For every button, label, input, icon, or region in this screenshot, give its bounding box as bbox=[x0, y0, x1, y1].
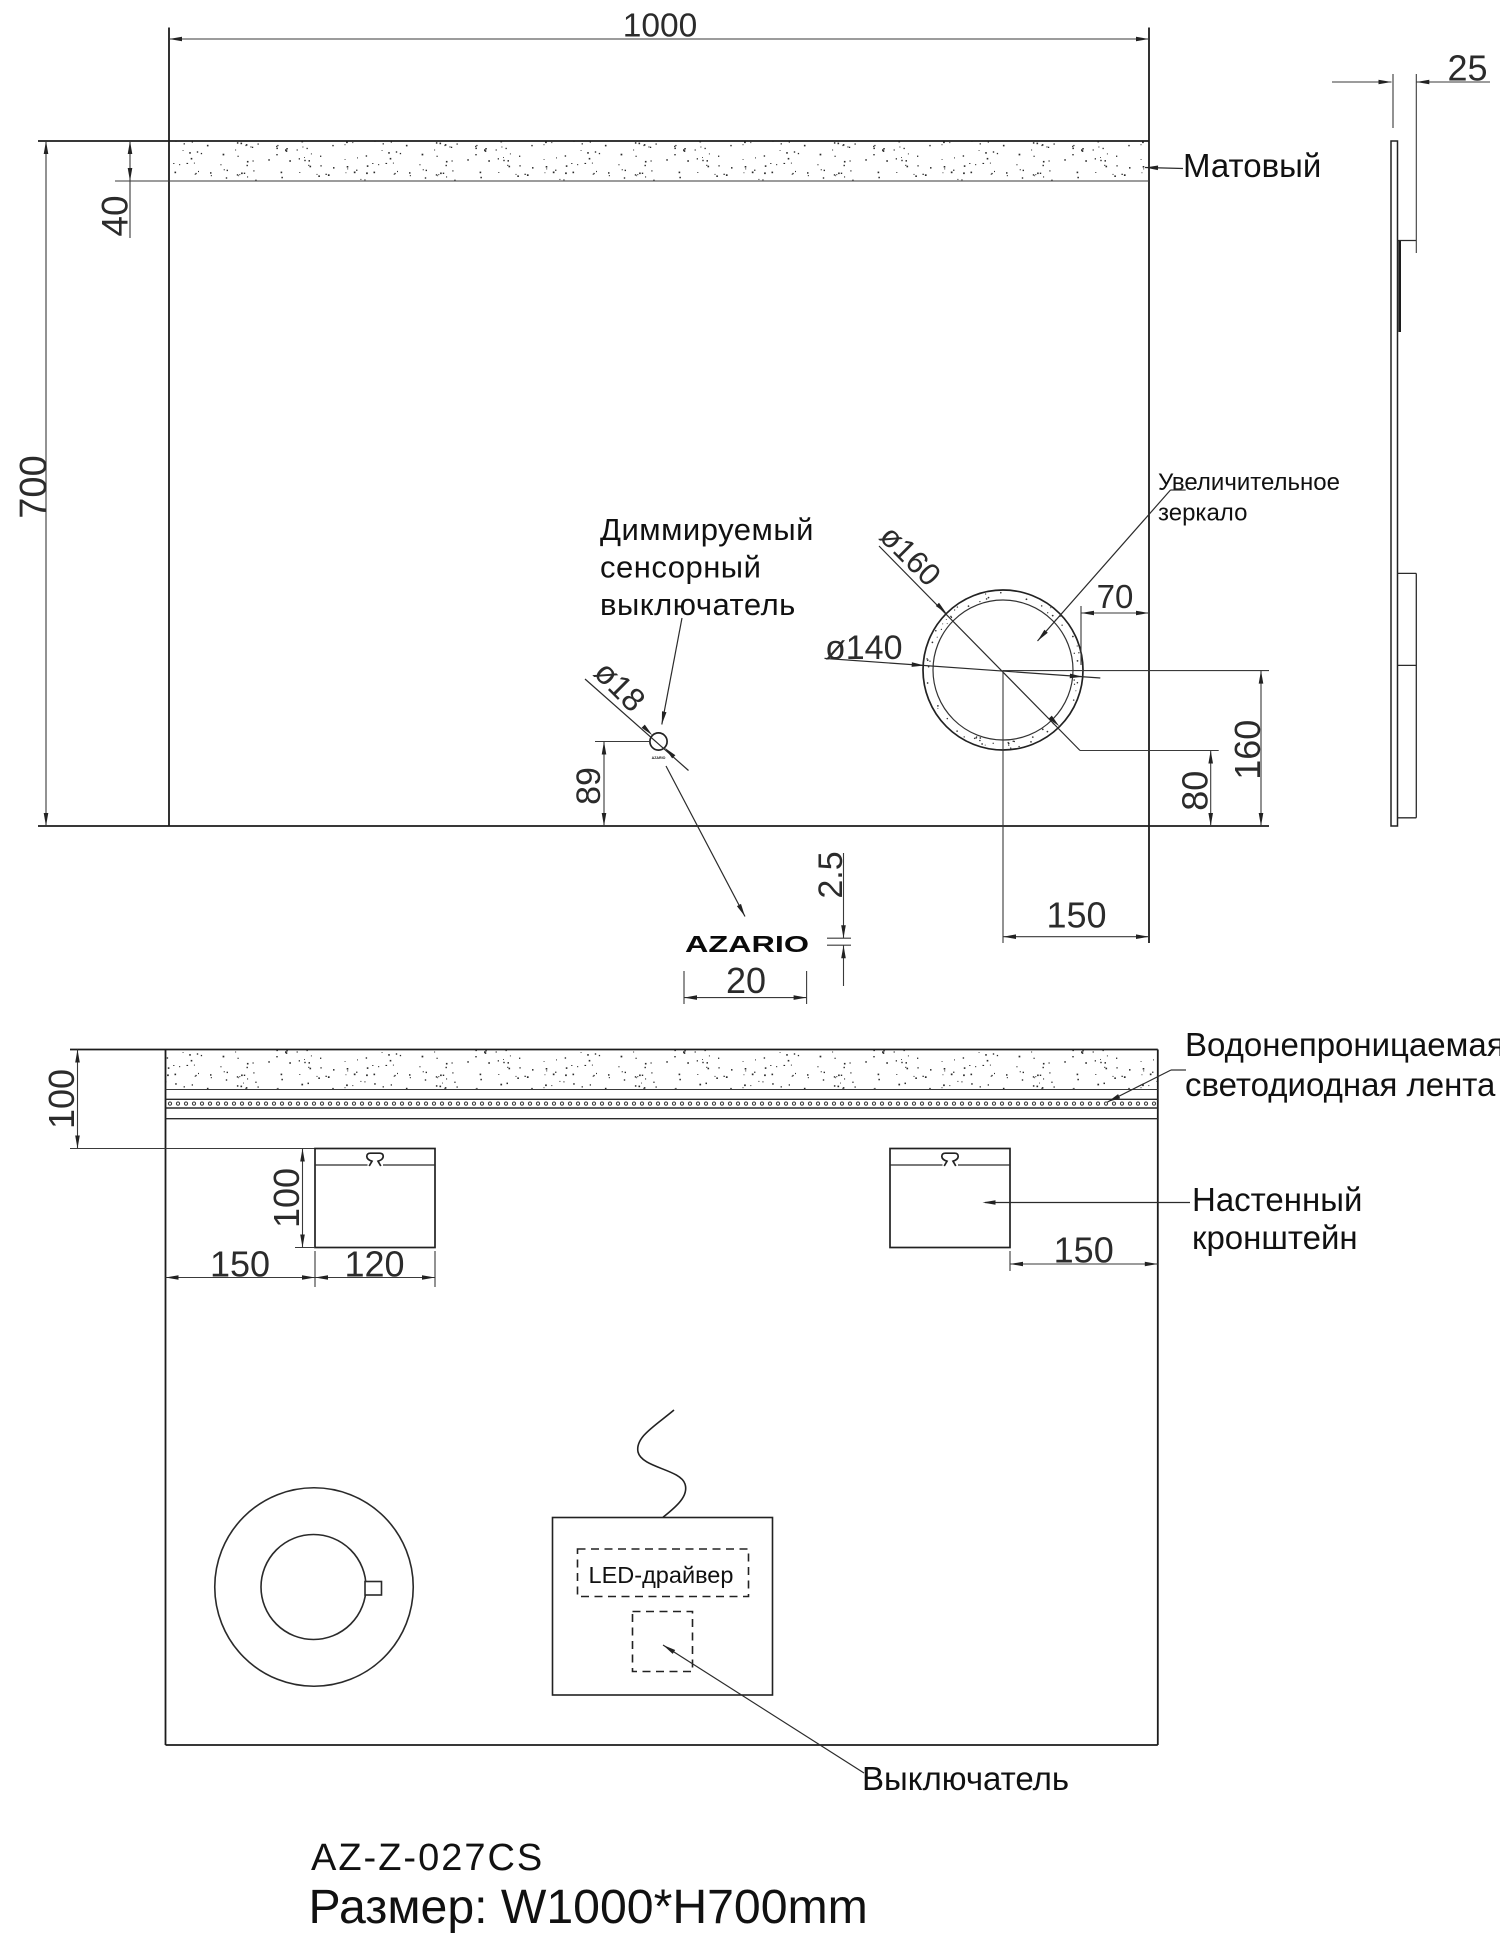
svg-text:25: 25 bbox=[1447, 48, 1487, 89]
svg-text:1000: 1000 bbox=[623, 8, 698, 45]
svg-text:20: 20 bbox=[726, 960, 766, 1001]
svg-text:Матовый: Матовый bbox=[1183, 147, 1321, 184]
svg-text:100: 100 bbox=[266, 1168, 307, 1228]
svg-text:2.5: 2.5 bbox=[812, 851, 850, 898]
svg-text:LED-драйвер: LED-драйвер bbox=[589, 1562, 734, 1588]
svg-text:AZARIO: AZARIO bbox=[652, 756, 666, 760]
svg-text:89: 89 bbox=[570, 767, 608, 805]
svg-text:Увеличительное: Увеличительное bbox=[1158, 469, 1340, 496]
svg-text:100: 100 bbox=[41, 1069, 82, 1129]
svg-text:светодиодная лента: светодиодная лента bbox=[1185, 1066, 1496, 1103]
svg-text:Выключатель: Выключатель bbox=[862, 1760, 1069, 1797]
svg-text:зеркало: зеркало bbox=[1158, 500, 1247, 527]
svg-text:120: 120 bbox=[344, 1244, 404, 1285]
svg-text:Водонепроницаемая: Водонепроницаемая bbox=[1185, 1026, 1500, 1063]
svg-text:80: 80 bbox=[1175, 771, 1216, 811]
svg-text:Диммируемый: Диммируемый bbox=[600, 512, 814, 547]
svg-text:150: 150 bbox=[210, 1244, 270, 1285]
svg-text:AZARIO: AZARIO bbox=[685, 931, 809, 957]
svg-text:Настенный: Настенный bbox=[1192, 1181, 1362, 1218]
svg-text:выключатель: выключатель bbox=[600, 587, 796, 622]
svg-text:150: 150 bbox=[1046, 895, 1106, 936]
svg-text:700: 700 bbox=[13, 455, 55, 518]
svg-text:кронштейн: кронштейн bbox=[1192, 1219, 1358, 1256]
svg-text:Размер: W1000*H700mm: Размер: W1000*H700mm bbox=[309, 1880, 868, 1934]
svg-text:ø140: ø140 bbox=[825, 629, 903, 667]
svg-text:40: 40 bbox=[95, 195, 136, 236]
svg-text:160: 160 bbox=[1227, 720, 1268, 780]
svg-text:AZ-Z-027CS: AZ-Z-027CS bbox=[311, 1837, 544, 1879]
svg-text:70: 70 bbox=[1097, 578, 1134, 615]
svg-text:сенсорный: сенсорный bbox=[600, 550, 761, 585]
svg-text:150: 150 bbox=[1054, 1230, 1114, 1271]
